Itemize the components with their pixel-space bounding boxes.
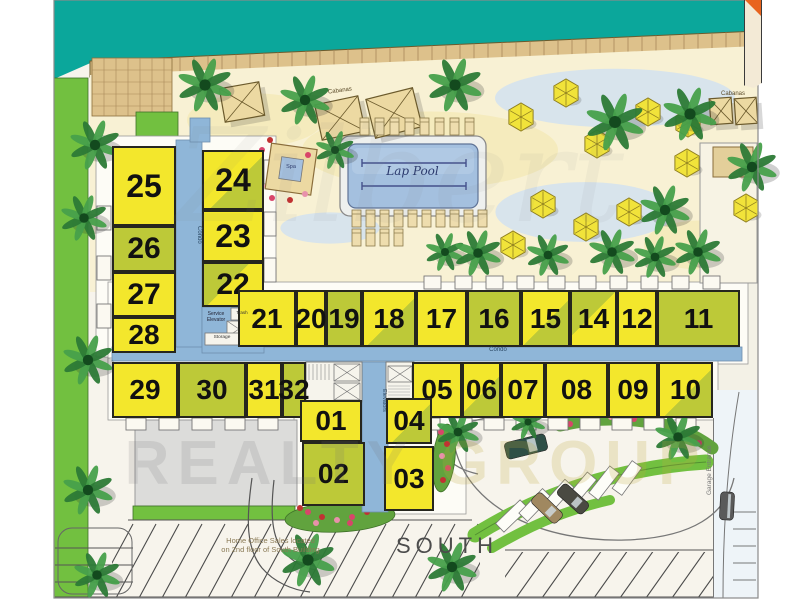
home-office-note: Home Office Sales located on 2nd floor o… [188, 536, 353, 555]
unit-28: 28 [112, 317, 176, 353]
units-layer: 2526272824232221201918171615141211293031… [0, 0, 800, 600]
unit-30: 30 [178, 362, 246, 418]
unit-23: 23 [202, 210, 264, 262]
site-plan-canvas: 2526272824232221201918171615141211293031… [0, 0, 800, 600]
unit-27: 27 [112, 272, 176, 317]
unit-15: 15 [521, 290, 570, 347]
unit-11: 11 [657, 290, 740, 347]
unit-03: 03 [384, 446, 434, 511]
unit-26: 26 [112, 226, 176, 272]
unit-01: 01 [300, 400, 362, 442]
garage-entrance-label: Garage Entrance [706, 430, 720, 510]
unit-25: 25 [112, 146, 176, 226]
south-building-label: SOUTH [382, 533, 512, 559]
unit-21: 21 [238, 290, 296, 347]
page-curl-graphic [744, 0, 762, 88]
unit-16: 16 [467, 290, 521, 347]
elevators-label: Elevators [363, 375, 387, 425]
unit-29: 29 [112, 362, 178, 418]
corridor-label: Condo [468, 347, 528, 353]
unit-14: 14 [570, 290, 617, 347]
service-elevator-label: Service Elevator [203, 312, 229, 324]
unit-08: 08 [545, 362, 608, 418]
lap-pool-label: Lap Pool [350, 164, 475, 178]
unit-07: 07 [501, 362, 545, 418]
home-office-note-line2: on 2nd floor of South Building [221, 545, 319, 554]
unit-31: 31 [246, 362, 282, 418]
home-office-note-line1: Home Office Sales located [226, 536, 315, 545]
spa-label: Spa [278, 164, 304, 170]
storage-label: Storage [205, 335, 239, 340]
unit-18: 18 [362, 290, 416, 347]
unit-19: 19 [326, 290, 362, 347]
unit-24: 24 [202, 150, 264, 210]
trash-label: Trash [231, 310, 253, 315]
unit-06: 06 [462, 362, 501, 418]
unit-10: 10 [658, 362, 713, 418]
unit-20: 20 [296, 290, 326, 347]
unit-12: 12 [617, 290, 657, 347]
unit-17: 17 [416, 290, 467, 347]
unit-02: 02 [302, 442, 365, 506]
page-curl-tip [745, 0, 761, 16]
unit-04: 04 [386, 398, 432, 444]
unit-09: 09 [608, 362, 658, 418]
corridor-label: Condo [176, 205, 202, 265]
cabanas-label: Cabanas [706, 91, 760, 97]
